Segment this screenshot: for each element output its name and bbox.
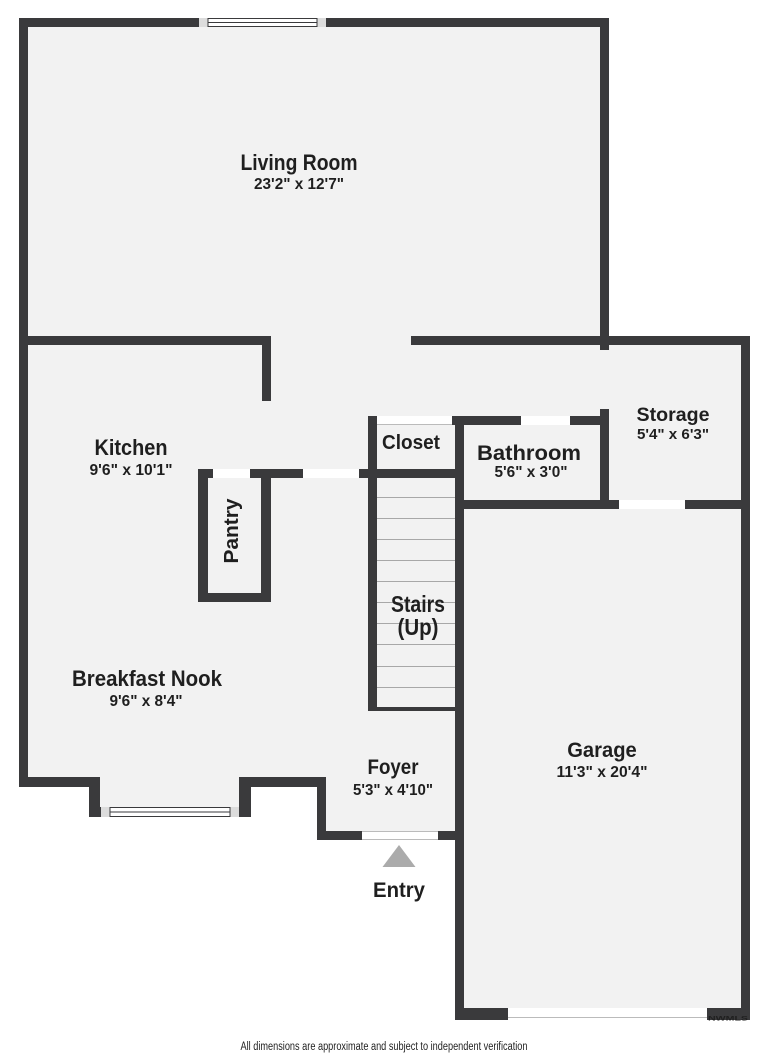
svg-text:Closet: Closet [382,431,440,454]
svg-text:Kitchen: Kitchen [95,435,168,460]
svg-text:Living Room: Living Room [241,150,358,175]
svg-text:Breakfast Nook: Breakfast Nook [72,666,223,691]
svg-text:Garage: Garage [567,739,637,762]
svg-text:5'4" x 6'3": 5'4" x 6'3" [637,426,709,443]
svg-text:(Up): (Up) [398,614,439,640]
svg-text:11'3" x 20'4": 11'3" x 20'4" [557,764,648,781]
svg-text:5'6" x 3'0": 5'6" x 3'0" [495,464,568,481]
svg-text:5'3" x 4'10": 5'3" x 4'10" [353,782,433,799]
svg-text:Pantry: Pantry [221,498,243,564]
svg-text:9'6" x 10'1": 9'6" x 10'1" [90,462,173,479]
svg-text:Bathroom: Bathroom [477,442,581,465]
svg-text:Entry: Entry [373,879,425,902]
svg-text:All dimensions are approximate: All dimensions are approximate and subje… [241,1041,528,1053]
svg-text:NWMLS: NWMLS [708,1016,749,1023]
svg-text:Storage: Storage [637,404,710,426]
svg-text:9'6" x 8'4": 9'6" x 8'4" [110,693,183,710]
svg-text:23'2" x 12'7": 23'2" x 12'7" [254,176,344,193]
svg-text:Foyer: Foyer [368,756,419,779]
